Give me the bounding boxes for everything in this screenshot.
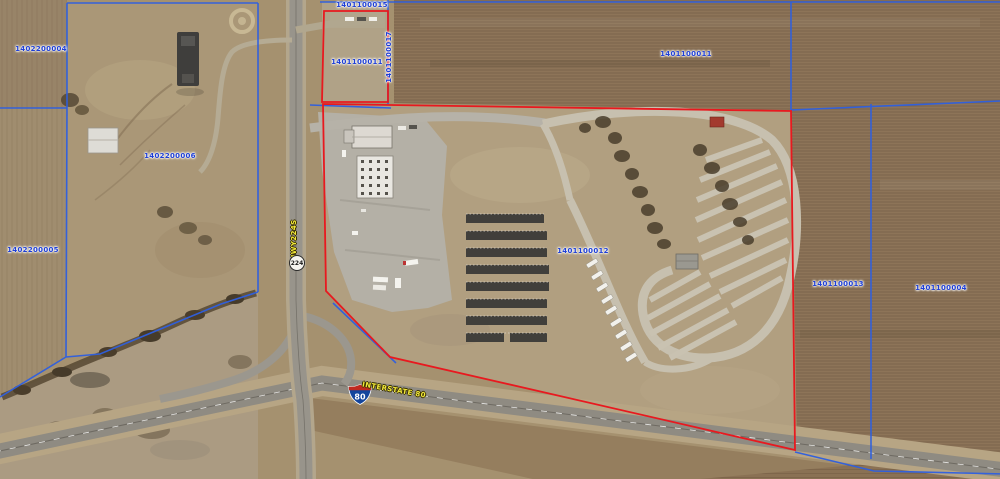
map-canvas[interactable]: 1402200004140110001514011000111401100017… (0, 0, 1000, 479)
aerial-imagery (0, 0, 1000, 479)
field-west (0, 0, 67, 397)
selected-parcel-north[interactable] (322, 11, 388, 102)
